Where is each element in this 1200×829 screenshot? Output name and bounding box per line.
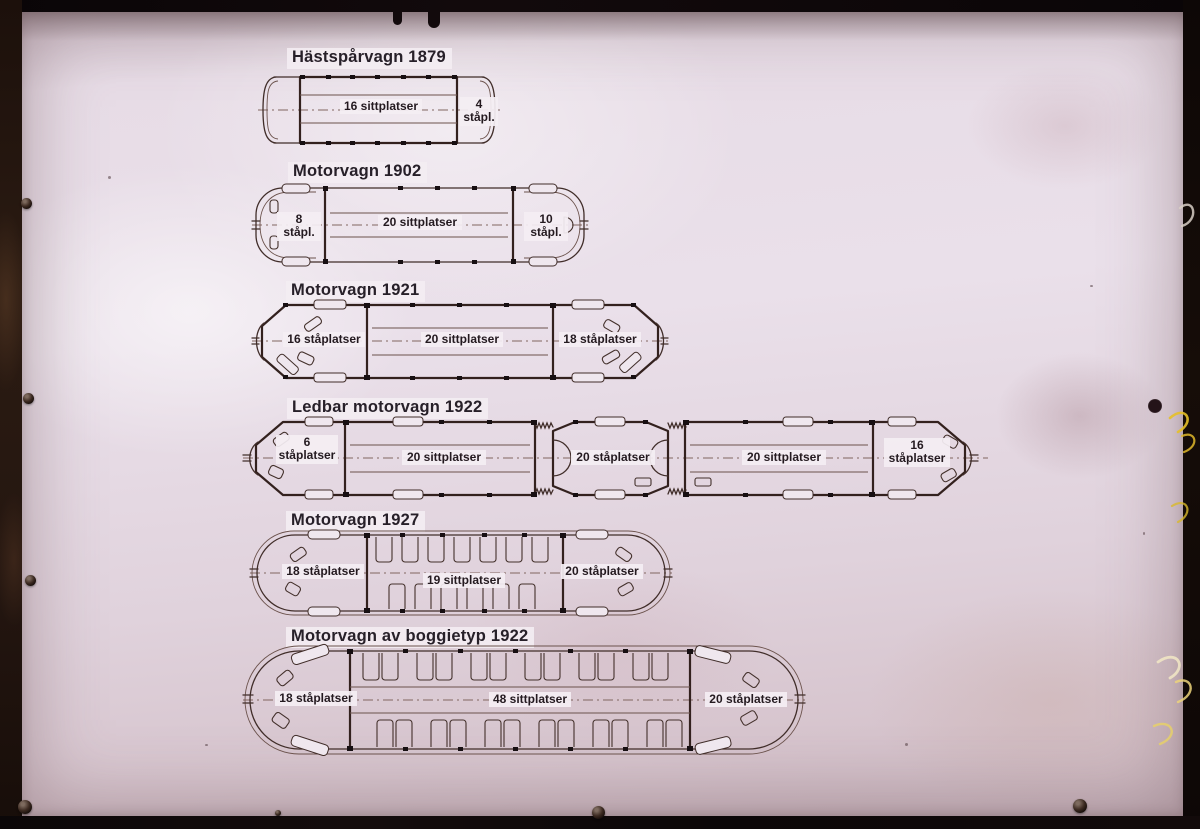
pin xyxy=(592,806,605,819)
tram-diagram-hastsparvagn-1879: Hästspårvagn 1879 xyxy=(258,48,502,152)
tram-diagram-motorvagn-1902: Motorvagn 1902 xyxy=(252,162,592,270)
capacity-label: 18 ståplatser xyxy=(282,564,364,579)
capacity-label: 4 ståpl. xyxy=(460,97,498,126)
pin xyxy=(1073,799,1087,813)
capacity-label: 20 sittplatser xyxy=(402,450,486,465)
diagram-title: Motorvagn 1902 xyxy=(288,162,427,183)
capacity-label: 20 ståplatser xyxy=(705,692,787,707)
tram-diagram-motorvagn-av-boggietyp-1922: Motorvagn av boggietyp 1922 xyxy=(243,626,805,763)
capacity-label: 16 ståplatser xyxy=(283,332,365,347)
pin xyxy=(18,800,32,814)
paper-top-shadow xyxy=(20,11,1185,41)
capacity-label: 10 ståpl. xyxy=(524,212,568,241)
capacity-label: 6 ståplatser xyxy=(276,435,338,464)
capacity-label: 18 ståplatser xyxy=(275,691,357,706)
speck xyxy=(905,743,908,746)
capacity-label: 16 sittplatser xyxy=(340,99,422,114)
capacity-label: 8 ståpl. xyxy=(277,212,321,241)
photo-frame-left xyxy=(0,0,22,829)
tram-diagram-ledbar-motorvagn-1922: Ledbar motorvagn 1922 xyxy=(243,397,988,505)
capacity-label: 20 ståplatser xyxy=(561,564,643,579)
capacity-label: 16 ståplatser xyxy=(884,438,950,467)
speck xyxy=(205,744,208,746)
diagram-title: Hästspårvagn 1879 xyxy=(287,48,452,69)
archival-photo-scene: Hästspårvagn 1879 xyxy=(0,0,1200,829)
speck xyxy=(108,176,111,179)
tram-diagram-motorvagn-1927: Motorvagn 1927 xyxy=(250,510,674,620)
capacity-label: 20 sittplatser xyxy=(421,332,503,347)
speck xyxy=(1090,285,1093,287)
pin xyxy=(21,198,32,209)
pin xyxy=(25,575,36,586)
ink-drip xyxy=(428,10,440,28)
capacity-label: 20 sittplatser xyxy=(742,450,826,465)
film-scratches xyxy=(1128,170,1200,780)
pin xyxy=(23,393,34,404)
ink-drip xyxy=(393,10,402,25)
capacity-label: 20 sittplatser xyxy=(378,215,462,230)
tram-diagram-motorvagn-1921: Motorvagn 1921 xyxy=(252,280,672,388)
pin xyxy=(275,810,281,816)
photo-frame-top xyxy=(0,0,1200,12)
capacity-label: 19 sittplatser xyxy=(423,573,505,588)
capacity-label: 48 sittplatser xyxy=(489,692,571,707)
capacity-label: 20 ståplatser xyxy=(571,450,655,465)
capacity-label: 18 ståplatser xyxy=(559,332,641,347)
